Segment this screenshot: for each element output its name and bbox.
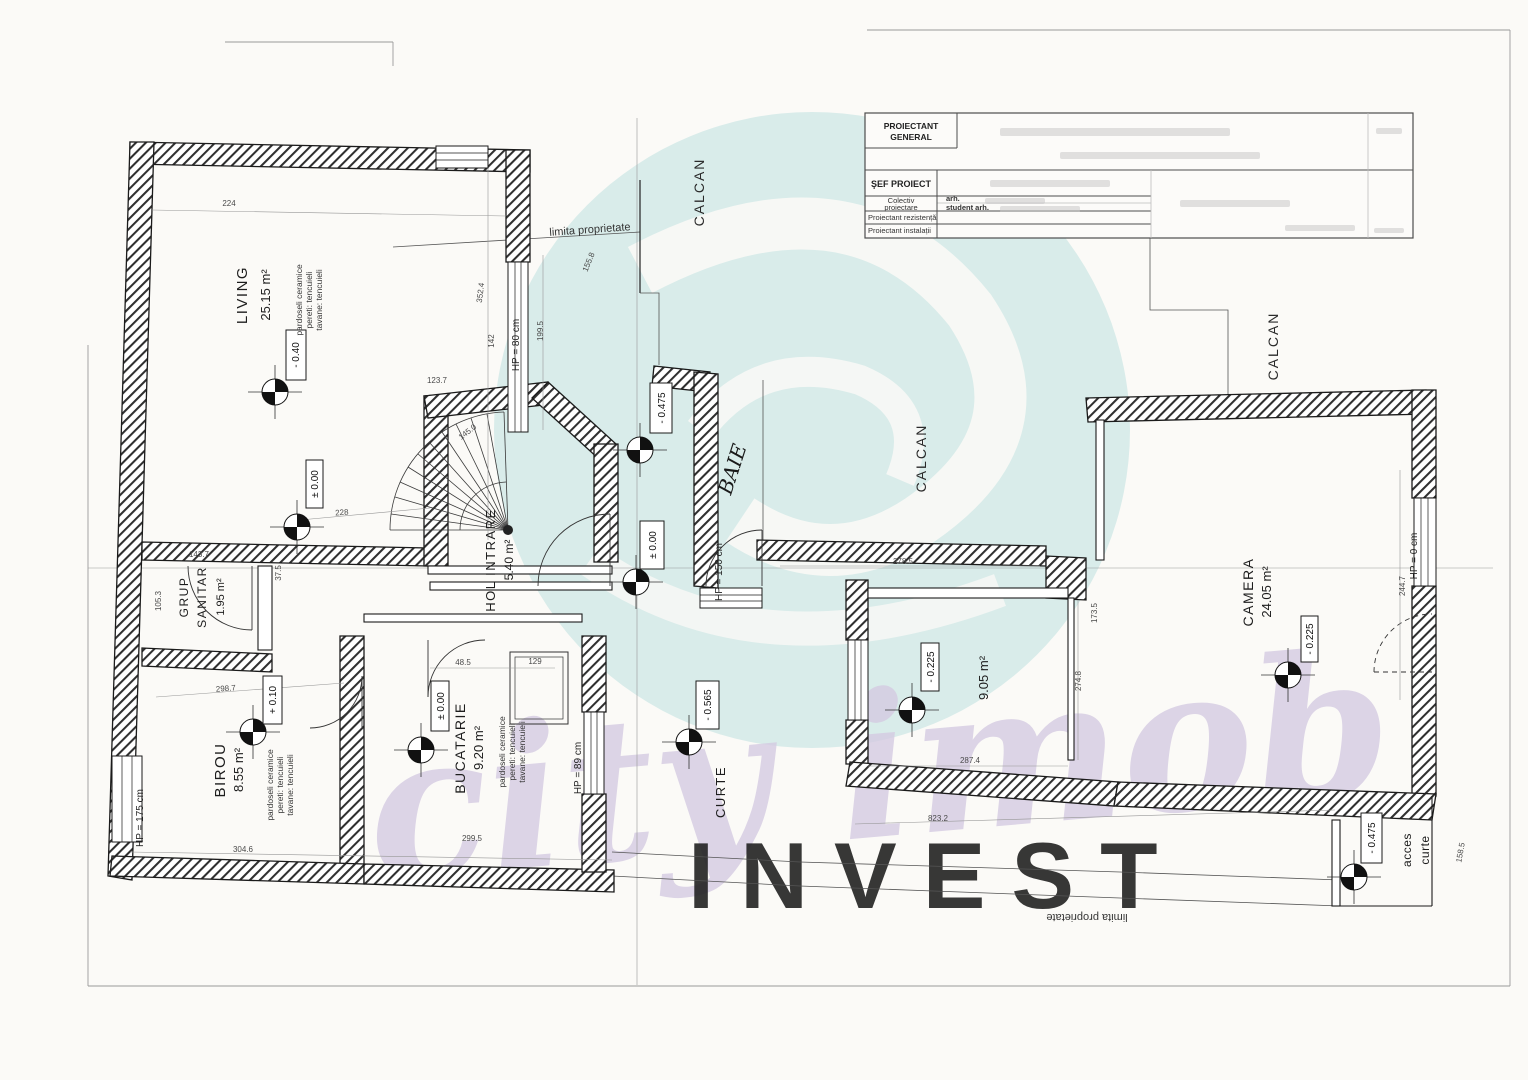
level-acces: - 0.475 xyxy=(1367,822,1378,854)
level-camera: - 0.225 xyxy=(1305,623,1316,655)
dimension: 123.7 xyxy=(427,376,448,385)
room-birou-finish3: tavane: tencuieli xyxy=(285,754,295,816)
wall-segment xyxy=(846,580,868,640)
room-camera-name: CAMERA xyxy=(1240,558,1256,627)
hp-baie-window: HP = 150 cm xyxy=(714,543,725,601)
level-baie: ± 0.00 xyxy=(648,531,659,559)
wall-segment xyxy=(506,150,530,262)
hp-birou-window: HP = 175 cm xyxy=(135,789,146,847)
partition xyxy=(430,582,612,590)
dimension: 299.5 xyxy=(462,834,483,843)
hp-camera-window: HP = 0 cm xyxy=(1409,533,1420,580)
window-top-wall xyxy=(436,146,488,168)
room-birou-finish2: pereti: tencuieli xyxy=(275,756,285,813)
dimension: 304.6 xyxy=(233,845,254,854)
wall-segment xyxy=(594,444,618,562)
title-colectiv-2: proiectare xyxy=(884,203,917,212)
room-hol-area: 5.40 m² xyxy=(502,540,516,581)
room-grup-name2: SANITAR xyxy=(195,566,209,628)
partition xyxy=(1096,420,1104,560)
level-room905: - 0.225 xyxy=(926,651,937,683)
title-proiectant-rezistenta: Proiectant rezistență xyxy=(868,213,937,222)
partition xyxy=(258,566,272,650)
room-bucatarie-area: 9.20 m² xyxy=(471,725,486,770)
room-living-finish2: pereti: tencuieli xyxy=(304,271,314,328)
wall-segment xyxy=(110,856,364,884)
room-living-area: 25.15 m² xyxy=(258,269,273,321)
hp-bucatarie-window: HP = 89 cm xyxy=(573,742,584,794)
dimension: 244.7 xyxy=(1398,575,1407,596)
wall-segment xyxy=(1412,390,1436,498)
hp-living-window: HP = 80 cm xyxy=(511,319,522,371)
floor-plan-sheet: city imob INVEST xyxy=(0,0,1528,1080)
dimension: 173.5 xyxy=(1090,602,1099,623)
room-bucatarie-finish1: pardoseli ceramice xyxy=(497,716,507,788)
level-bucatarie: ± 0.00 xyxy=(436,692,447,720)
room-birou-name: BIROU xyxy=(212,742,229,797)
floor-plan-drawing: city imob INVEST xyxy=(0,0,1528,1080)
window-baie xyxy=(700,588,762,608)
title-proiectant-general-2: GENERAL xyxy=(890,132,932,142)
wall-segment xyxy=(582,636,606,712)
room-living-finish3: tavane: tencuieli xyxy=(314,269,324,331)
wall-segment xyxy=(340,636,364,882)
level-hol: ± 0.00 xyxy=(310,470,321,498)
level-birou: + 0.10 xyxy=(268,686,279,715)
dimension: 228 xyxy=(335,508,349,518)
room-905-area: 9.05 m² xyxy=(976,655,991,700)
calcan-label-right: CALCAN xyxy=(1265,312,1281,381)
title-sef-proiect: ŞEF PROIECT xyxy=(871,179,932,189)
room-bucatarie-finish2: pereti: tencuieli xyxy=(507,723,517,780)
dimension: 298.7 xyxy=(216,683,237,693)
wall-segment xyxy=(142,542,428,566)
dimension: 129 xyxy=(528,657,542,666)
dimension: 105.3 xyxy=(154,590,163,611)
dimension: 48.5 xyxy=(455,658,471,667)
level-baie-top: - 0.475 xyxy=(657,392,668,424)
room-hol-name: HOL INTRARE xyxy=(483,508,498,611)
dimension: 274.8 xyxy=(1074,670,1083,691)
stair-center xyxy=(503,525,513,535)
title-student-arh: student arh. xyxy=(946,203,989,212)
room-birou-area: 8.55 m² xyxy=(231,747,246,792)
wall-segment xyxy=(846,720,868,764)
room-grup-name: GRUP xyxy=(177,577,191,618)
limita-proprietate-bottom: limita proprietate xyxy=(1046,911,1127,923)
partition xyxy=(364,614,582,622)
title-proiectant-instalatii: Proiectant instalații xyxy=(868,226,931,235)
wall-segment xyxy=(424,394,448,566)
partition xyxy=(428,566,612,574)
window-bucatarie xyxy=(584,712,604,794)
acces-curte-label1: acces xyxy=(1400,833,1414,867)
level-curte: - 0.565 xyxy=(703,689,714,721)
title-proiectant-general-1: PROIECTANT xyxy=(884,121,939,131)
title-block: PROIECTANT GENERAL ŞEF PROIECT Colectiv … xyxy=(865,113,1413,238)
calcan-label-top: CALCAN xyxy=(691,158,707,227)
room-bucatarie-finish3: tavane: tencuieli xyxy=(517,721,527,783)
dimension: 224 xyxy=(222,199,236,208)
dimension: 823.2 xyxy=(928,814,949,823)
acces-curte-label2: curte xyxy=(1418,835,1432,864)
partition xyxy=(1332,820,1340,906)
calcan-label-middle: CALCAN xyxy=(913,424,929,493)
level-living: - 0.40 xyxy=(291,342,302,368)
partition xyxy=(868,588,1068,598)
room-living-name: LIVING xyxy=(234,266,251,324)
wall-segment xyxy=(1086,390,1428,422)
room-camera-area: 24.05 m² xyxy=(1259,566,1274,618)
title-arh: arh. xyxy=(946,194,960,203)
dimension: 199.5 xyxy=(536,320,545,341)
wall-segment xyxy=(582,794,606,872)
dimension: 37.5 xyxy=(274,565,283,581)
window-room905 xyxy=(848,640,868,720)
dimension: 158.5 xyxy=(1454,841,1466,863)
dimension: 143.7 xyxy=(189,550,210,559)
dimension: 142 xyxy=(487,334,496,348)
room-living-finish1: pardoseli ceramice xyxy=(294,264,304,336)
dimension: 352.4 xyxy=(475,282,486,304)
wall-segment xyxy=(142,648,272,672)
room-grup-area: 1.95 m² xyxy=(215,578,227,616)
room-bucatarie-name: BUCATARIE xyxy=(452,702,468,794)
room-curte-name: CURTE xyxy=(713,766,728,818)
wall-segment xyxy=(1412,586,1436,796)
dimension: 278.5 xyxy=(893,557,914,566)
room-birou-finish1: pardoseli ceramice xyxy=(265,749,275,821)
dimension: 287.4 xyxy=(960,756,981,765)
